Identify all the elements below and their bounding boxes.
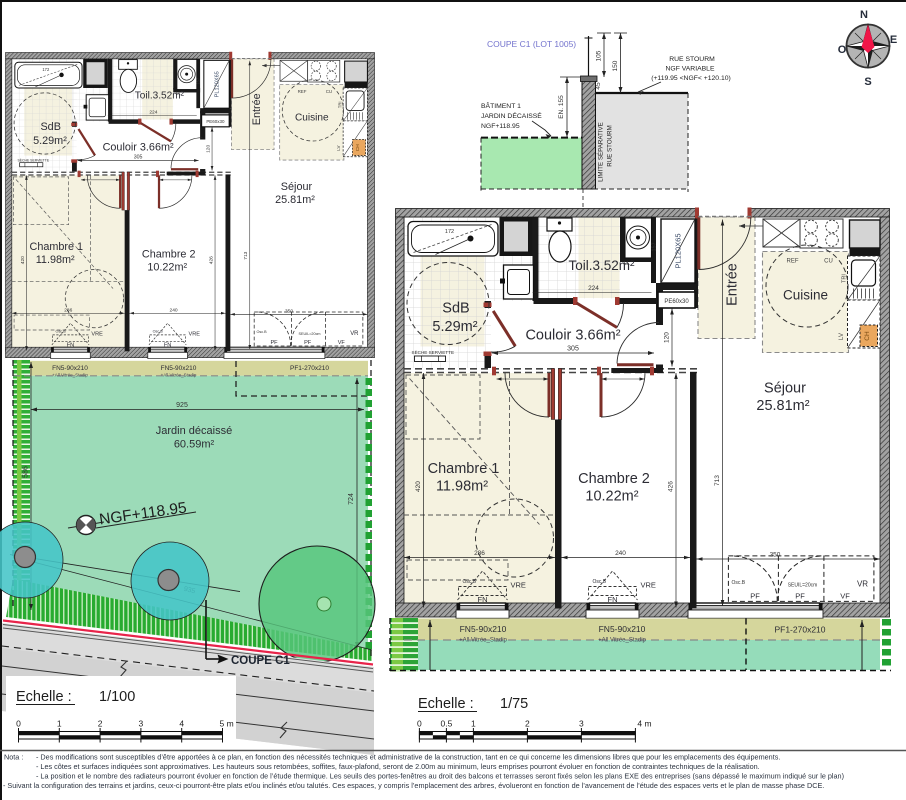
svg-text:RUE STOURM: RUE STOURM <box>607 125 614 166</box>
svg-text:COUPE C1: COUPE C1 <box>231 655 290 667</box>
svg-text:Osc.B: Osc.B <box>153 329 164 333</box>
svg-text:(+119.95 <NGF< +120.10): (+119.95 <NGF< +120.10) <box>651 75 731 82</box>
svg-text:FN: FN <box>608 595 618 604</box>
svg-text:Entrée: Entrée <box>251 93 263 125</box>
svg-text:CU: CU <box>824 259 833 265</box>
svg-text:PF1-270x210: PF1-270x210 <box>774 625 825 635</box>
svg-text:SEUIL=20cm: SEUIL=20cm <box>788 583 818 589</box>
svg-text:1/75: 1/75 <box>500 696 528 712</box>
svg-text:REF: REF <box>787 259 799 265</box>
svg-text:FN5-90x210: FN5-90x210 <box>161 365 197 372</box>
svg-text:- La position et le nombre des: - La position et le nombre des radiateur… <box>36 772 844 781</box>
svg-text:Nota :: Nota : <box>4 753 23 762</box>
svg-text:- Les côtes et surfaces indiqu: - Les côtes et surfaces indiquées sont a… <box>36 762 760 771</box>
svg-text:10.22m²: 10.22m² <box>147 262 187 274</box>
svg-text:E: E <box>890 34 897 46</box>
svg-text:FN: FN <box>478 595 488 604</box>
svg-text:713: 713 <box>714 475 721 486</box>
svg-text:305: 305 <box>134 155 143 161</box>
svg-text:Osc.B: Osc.B <box>593 579 607 585</box>
svg-text:TRI: TRI <box>842 274 848 283</box>
svg-text:LV: LV <box>839 333 845 340</box>
svg-text:SdB: SdB <box>442 301 469 317</box>
svg-text:Couloir 3.66m²: Couloir 3.66m² <box>525 328 620 344</box>
svg-text:PE60x30: PE60x30 <box>206 119 225 124</box>
svg-text:CU: CU <box>326 89 332 94</box>
svg-text:FN5-90x210: FN5-90x210 <box>52 365 88 372</box>
svg-text:925: 925 <box>176 402 188 409</box>
svg-text:350: 350 <box>770 552 781 559</box>
svg-text:Echelle :: Echelle : <box>16 689 72 705</box>
svg-text:5.29m²: 5.29m² <box>432 319 477 335</box>
svg-text:1: 1 <box>471 719 476 729</box>
svg-text:286: 286 <box>474 550 485 557</box>
svg-text:Séjour: Séjour <box>764 381 806 397</box>
svg-text:- Suivant la configuration des: - Suivant la configuration des terrains … <box>3 781 824 790</box>
svg-text:Chambre 2: Chambre 2 <box>578 471 650 487</box>
svg-text:S: S <box>864 76 871 88</box>
svg-text:COUPE C1 (LOT 1005): COUPE C1 (LOT 1005) <box>487 39 576 49</box>
svg-text:VRE: VRE <box>91 332 103 338</box>
svg-text:172: 172 <box>445 229 454 235</box>
svg-text:Jardin décaissé: Jardin décaissé <box>156 425 232 437</box>
svg-text:Cuisine: Cuisine <box>295 112 329 123</box>
svg-text:PF: PF <box>750 592 760 601</box>
svg-text:Osc.B: Osc.B <box>732 580 746 586</box>
svg-text:+All.Vitrée_Stadip: +All.Vitrée_Stadip <box>459 638 507 644</box>
svg-text:2: 2 <box>98 719 103 729</box>
svg-text:45: 45 <box>595 82 602 90</box>
svg-text:0: 0 <box>417 719 422 729</box>
svg-text:NGF+118.95: NGF+118.95 <box>481 123 520 130</box>
svg-text:11.98m²: 11.98m² <box>36 254 75 266</box>
svg-text:JARDIN DÉCAISSÉ: JARDIN DÉCAISSÉ <box>481 111 542 120</box>
svg-text:120: 120 <box>205 145 211 153</box>
svg-text:713: 713 <box>243 251 249 259</box>
svg-text:120: 120 <box>664 332 671 343</box>
svg-text:0.5: 0.5 <box>440 719 452 729</box>
svg-text:5 m: 5 m <box>220 719 234 729</box>
svg-text:60.59m²: 60.59m² <box>174 439 215 451</box>
svg-text:25.81m²: 25.81m² <box>756 398 809 414</box>
svg-text:+All.Vitrée_Stadip: +All.Vitrée_Stadip <box>598 638 646 644</box>
svg-text:25.81m²: 25.81m² <box>275 194 315 206</box>
svg-text:FN5-90x210: FN5-90x210 <box>460 624 507 634</box>
svg-text:10.22m²: 10.22m² <box>585 489 638 505</box>
svg-text:LV: LV <box>336 146 341 151</box>
svg-text:VRE: VRE <box>641 581 656 590</box>
svg-text:4: 4 <box>179 719 184 729</box>
svg-text:BÂTIMENT 1: BÂTIMENT 1 <box>481 101 521 110</box>
svg-text:Osc.B: Osc.B <box>256 330 267 334</box>
svg-text:2: 2 <box>525 719 530 729</box>
svg-text:REF: REF <box>298 89 307 94</box>
svg-text:SdB: SdB <box>40 121 60 133</box>
svg-text:PL120X65: PL120X65 <box>674 233 683 268</box>
svg-text:VF: VF <box>338 340 346 346</box>
svg-text:172: 172 <box>42 67 50 72</box>
svg-text:PE60x30: PE60x30 <box>664 299 689 305</box>
svg-text:FN5-90x210: FN5-90x210 <box>599 624 646 634</box>
svg-text:LIMITE SÉPARATIVE: LIMITE SÉPARATIVE <box>598 122 605 182</box>
svg-text:TRI: TRI <box>338 101 343 108</box>
svg-text:286: 286 <box>64 307 72 313</box>
svg-text:240: 240 <box>170 307 178 313</box>
svg-text:SÈCHE SERVIETTE: SÈCHE SERVIETTE <box>17 157 49 162</box>
svg-text:Chambre 1: Chambre 1 <box>30 241 84 253</box>
svg-text:105: 105 <box>596 50 603 61</box>
svg-text:586: 586 <box>23 466 30 478</box>
svg-text:+All.Vitrée_Stadip: +All.Vitrée_Stadip <box>52 373 88 378</box>
svg-text:724: 724 <box>348 493 355 505</box>
svg-text:3: 3 <box>139 719 144 729</box>
svg-text:RUE STOURM: RUE STOURM <box>669 56 715 63</box>
svg-text:N: N <box>860 9 868 21</box>
svg-text:Séjour: Séjour <box>281 181 313 193</box>
svg-text:240: 240 <box>615 550 626 557</box>
svg-text:157: 157 <box>196 77 201 85</box>
svg-text:SÈCHE SERVIETTE: SÈCHE SERVIETTE <box>412 349 455 355</box>
svg-text:3: 3 <box>579 719 584 729</box>
svg-text:4 m: 4 m <box>637 719 651 729</box>
svg-text:FN: FN <box>67 342 74 348</box>
svg-text:VRE: VRE <box>189 332 201 338</box>
svg-text:PF: PF <box>270 340 278 346</box>
svg-text:SEUIL=20cm: SEUIL=20cm <box>299 332 321 336</box>
svg-text:PF: PF <box>304 340 312 346</box>
svg-text:157: 157 <box>652 242 658 251</box>
svg-text:Chambre 1: Chambre 1 <box>428 461 500 477</box>
svg-text:FN: FN <box>164 342 171 348</box>
svg-text:CH: CH <box>864 331 871 341</box>
svg-text:PL120X65: PL120X65 <box>214 71 220 97</box>
svg-text:350: 350 <box>285 308 293 314</box>
svg-text:Chambre 2: Chambre 2 <box>142 249 196 261</box>
svg-text:LL: LL <box>176 91 181 96</box>
svg-text:Couloir 3.66m²: Couloir 3.66m² <box>103 141 174 153</box>
svg-text:0: 0 <box>16 719 21 729</box>
svg-text:426: 426 <box>208 256 214 264</box>
svg-text:LL: LL <box>624 261 630 267</box>
svg-text:VF: VF <box>840 592 850 601</box>
svg-text:Entrée: Entrée <box>725 263 741 306</box>
svg-text:CH: CH <box>355 144 361 151</box>
svg-text:O: O <box>838 44 847 56</box>
svg-text:5.29m²: 5.29m² <box>33 135 67 147</box>
svg-text:305: 305 <box>567 346 579 353</box>
svg-text:150: 150 <box>612 60 619 71</box>
svg-text:EN. 155: EN. 155 <box>558 95 565 119</box>
svg-text:1/100: 1/100 <box>99 689 135 705</box>
svg-text:+All.Vitrée_Stadip: +All.Vitrée_Stadip <box>161 373 197 378</box>
svg-text:VR: VR <box>857 580 868 589</box>
svg-text:VRE: VRE <box>511 581 526 590</box>
svg-text:224: 224 <box>149 109 157 115</box>
svg-text:420: 420 <box>20 256 26 264</box>
svg-text:NGF VARIABLE: NGF VARIABLE <box>666 66 715 73</box>
svg-text:Cuisine: Cuisine <box>783 288 828 303</box>
svg-text:VR: VR <box>350 331 359 337</box>
svg-text:11.98m²: 11.98m² <box>436 479 488 495</box>
svg-text:420: 420 <box>415 481 422 492</box>
svg-text:Echelle :: Echelle : <box>418 696 474 712</box>
svg-text:PF1-270x210: PF1-270x210 <box>290 365 329 372</box>
svg-text:426: 426 <box>668 481 675 492</box>
svg-text:- Des modifications sont susce: - Des modifications sont susceptibles d’… <box>36 753 780 762</box>
svg-text:PF: PF <box>795 592 805 601</box>
svg-text:1: 1 <box>57 719 62 729</box>
svg-text:224: 224 <box>588 285 599 292</box>
